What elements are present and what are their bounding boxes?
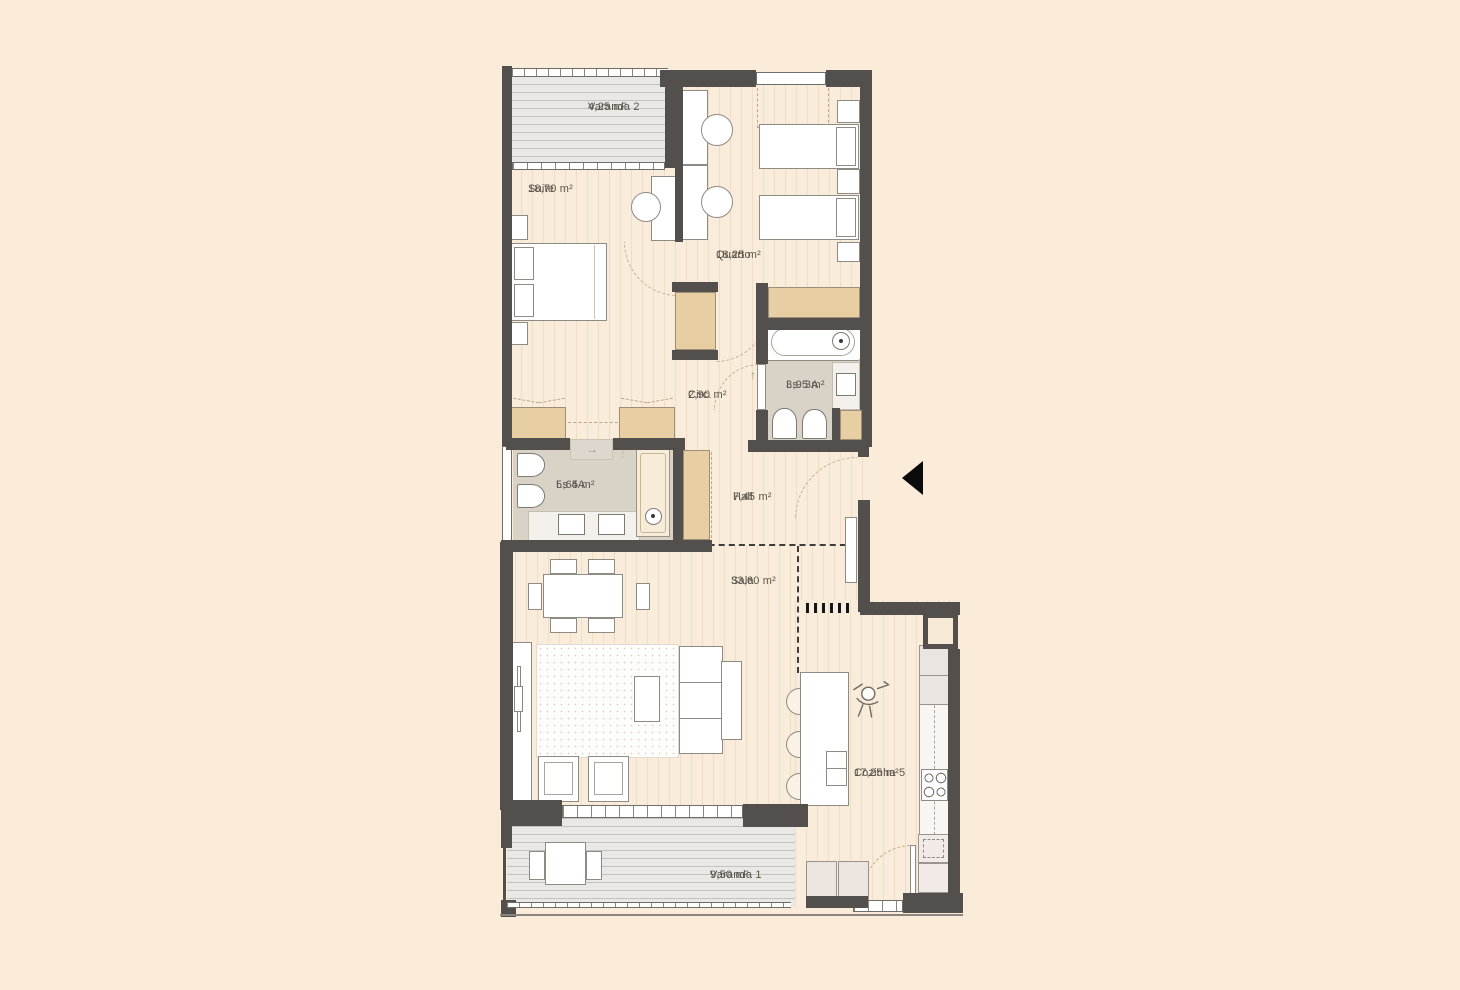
kitchen-appliance	[918, 863, 950, 893]
varanda1-railing	[507, 902, 791, 908]
wall-kitchen-right	[948, 649, 960, 895]
dining-chair	[550, 559, 577, 574]
is3a-bidet	[772, 408, 797, 439]
mat-arrow-icon: →	[586, 443, 598, 455]
is3a-door-leaf	[757, 364, 766, 410]
suite-desk-chair	[631, 192, 661, 222]
wall-is4a-top-right	[613, 438, 685, 450]
wall-is3a-top	[756, 318, 862, 330]
kitchen-counter-upper-cabinet	[920, 646, 949, 676]
room-area: 18,25 m²	[716, 248, 761, 263]
hall-wardrobe	[683, 450, 710, 540]
wall-top-quarto-right	[826, 70, 872, 87]
room-area: 4,25 m²	[588, 100, 627, 115]
wall-kitchen-bottom	[903, 893, 963, 913]
varanda1-chair	[529, 851, 545, 880]
sofa-seat	[679, 646, 723, 754]
vent-grille	[806, 603, 854, 613]
room-area: 33,60 m²	[731, 574, 776, 589]
dining-table	[543, 574, 623, 618]
shower-drain-dot	[651, 514, 655, 518]
varanda1-chair	[586, 851, 602, 880]
hall-wardrobe-open-mark	[711, 452, 712, 538]
sofa-cushion-line	[680, 718, 722, 719]
plan-outer-edge	[500, 914, 963, 916]
dining-chair	[528, 583, 542, 610]
is3a-sink	[836, 373, 856, 396]
wall-varanda1-left-thin	[503, 848, 506, 900]
room-area: 7,45 m²	[733, 490, 772, 505]
varanda2-deck	[512, 76, 665, 168]
sala-sliding-window	[562, 805, 743, 818]
sofa-cushion-line	[680, 682, 722, 683]
is3a-toilet	[802, 409, 827, 439]
wall-entry-lower	[858, 500, 870, 612]
suite-bed-pillow	[514, 247, 534, 280]
varanda2-window-sill	[512, 162, 665, 170]
kitchen-door-leaf	[910, 845, 916, 895]
wardrobe-open-mark	[568, 422, 618, 423]
armchair-inner	[594, 762, 623, 795]
wall-varanda1-bottom-right	[806, 896, 868, 908]
tv-screen-center	[514, 686, 523, 712]
wall-is3a-left-upper	[756, 330, 768, 364]
varanda1-table	[545, 842, 586, 885]
island-sink-divider	[827, 768, 846, 769]
quarto-wardrobe	[768, 287, 860, 318]
wall-left-sala	[500, 542, 513, 810]
oven-dashed-mark	[923, 839, 944, 858]
bathtub-drain-dot	[839, 339, 843, 343]
quarto-desk-chair	[701, 114, 733, 146]
quarto-bed-pillow	[836, 198, 856, 237]
floor-plan-canvas: → ↑	[0, 0, 1460, 990]
room-area: 3,95 m²	[786, 378, 825, 393]
is3a-niche	[840, 410, 862, 440]
dining-chair	[636, 583, 650, 610]
is4a-sink	[558, 514, 585, 535]
quarto-window	[756, 72, 826, 85]
is4a-toilet	[517, 453, 545, 477]
dining-chair	[588, 618, 615, 633]
front-door-leaf	[845, 517, 857, 583]
room-area: 17,25 m²	[854, 766, 899, 781]
wall-is3a-niche-bottom	[840, 440, 862, 452]
wall-circ-closet-bottom	[672, 350, 718, 360]
dining-chair	[550, 618, 577, 633]
suite-wardrobe	[619, 407, 675, 440]
entrance-arrow-icon	[902, 461, 923, 495]
suite-bed-pillow	[514, 284, 534, 317]
quarto-nightstand	[837, 242, 860, 262]
room-area: 9,50 m²	[710, 868, 749, 883]
wall-left-top	[502, 66, 512, 446]
quarto-nightstand	[837, 100, 860, 123]
suite-wardrobe	[511, 407, 566, 440]
wall-is3a-bottom	[748, 440, 834, 452]
wall-varanda2-quarto-divider	[665, 70, 683, 168]
room-area: 18,70 m²	[528, 182, 573, 197]
wall-is3a-niche-left	[832, 408, 840, 452]
is4a-bidet	[517, 484, 545, 508]
wall-is4a-right	[673, 450, 683, 542]
varanda2-railing	[512, 68, 668, 77]
room-area: 5,65 m²	[556, 478, 595, 493]
wall-suite-quarto-divider	[675, 168, 683, 242]
sofa-back	[721, 661, 742, 740]
quarto-desk-chair	[701, 186, 733, 218]
cooktop	[921, 769, 948, 801]
circ-closet	[675, 292, 716, 350]
coffee-table	[634, 676, 660, 722]
wall-varanda1-left-top	[501, 822, 512, 848]
quarto-open-wardrobe-marks	[757, 88, 829, 128]
wall-circ-closet-top	[672, 282, 718, 292]
quarto-bed-pillow	[836, 127, 856, 166]
is4a-window	[502, 446, 512, 542]
wall-is4a-top-left	[506, 438, 570, 450]
room-area: 2,90 m²	[688, 388, 727, 403]
wall-right-outer	[860, 87, 872, 447]
service-shaft	[923, 613, 958, 649]
is4a-sink	[598, 514, 625, 535]
armchair-inner	[544, 762, 573, 795]
suite-bed-fold-line	[594, 245, 595, 319]
quarto-nightstand	[837, 169, 860, 194]
wall-is4a-bottom	[501, 540, 712, 552]
sala-cozinha-boundary-dashed	[797, 546, 799, 673]
kitchen-counter-upper-cabinet	[920, 676, 949, 705]
wall-sala-bottom-right	[743, 804, 808, 827]
dining-chair	[588, 559, 615, 574]
